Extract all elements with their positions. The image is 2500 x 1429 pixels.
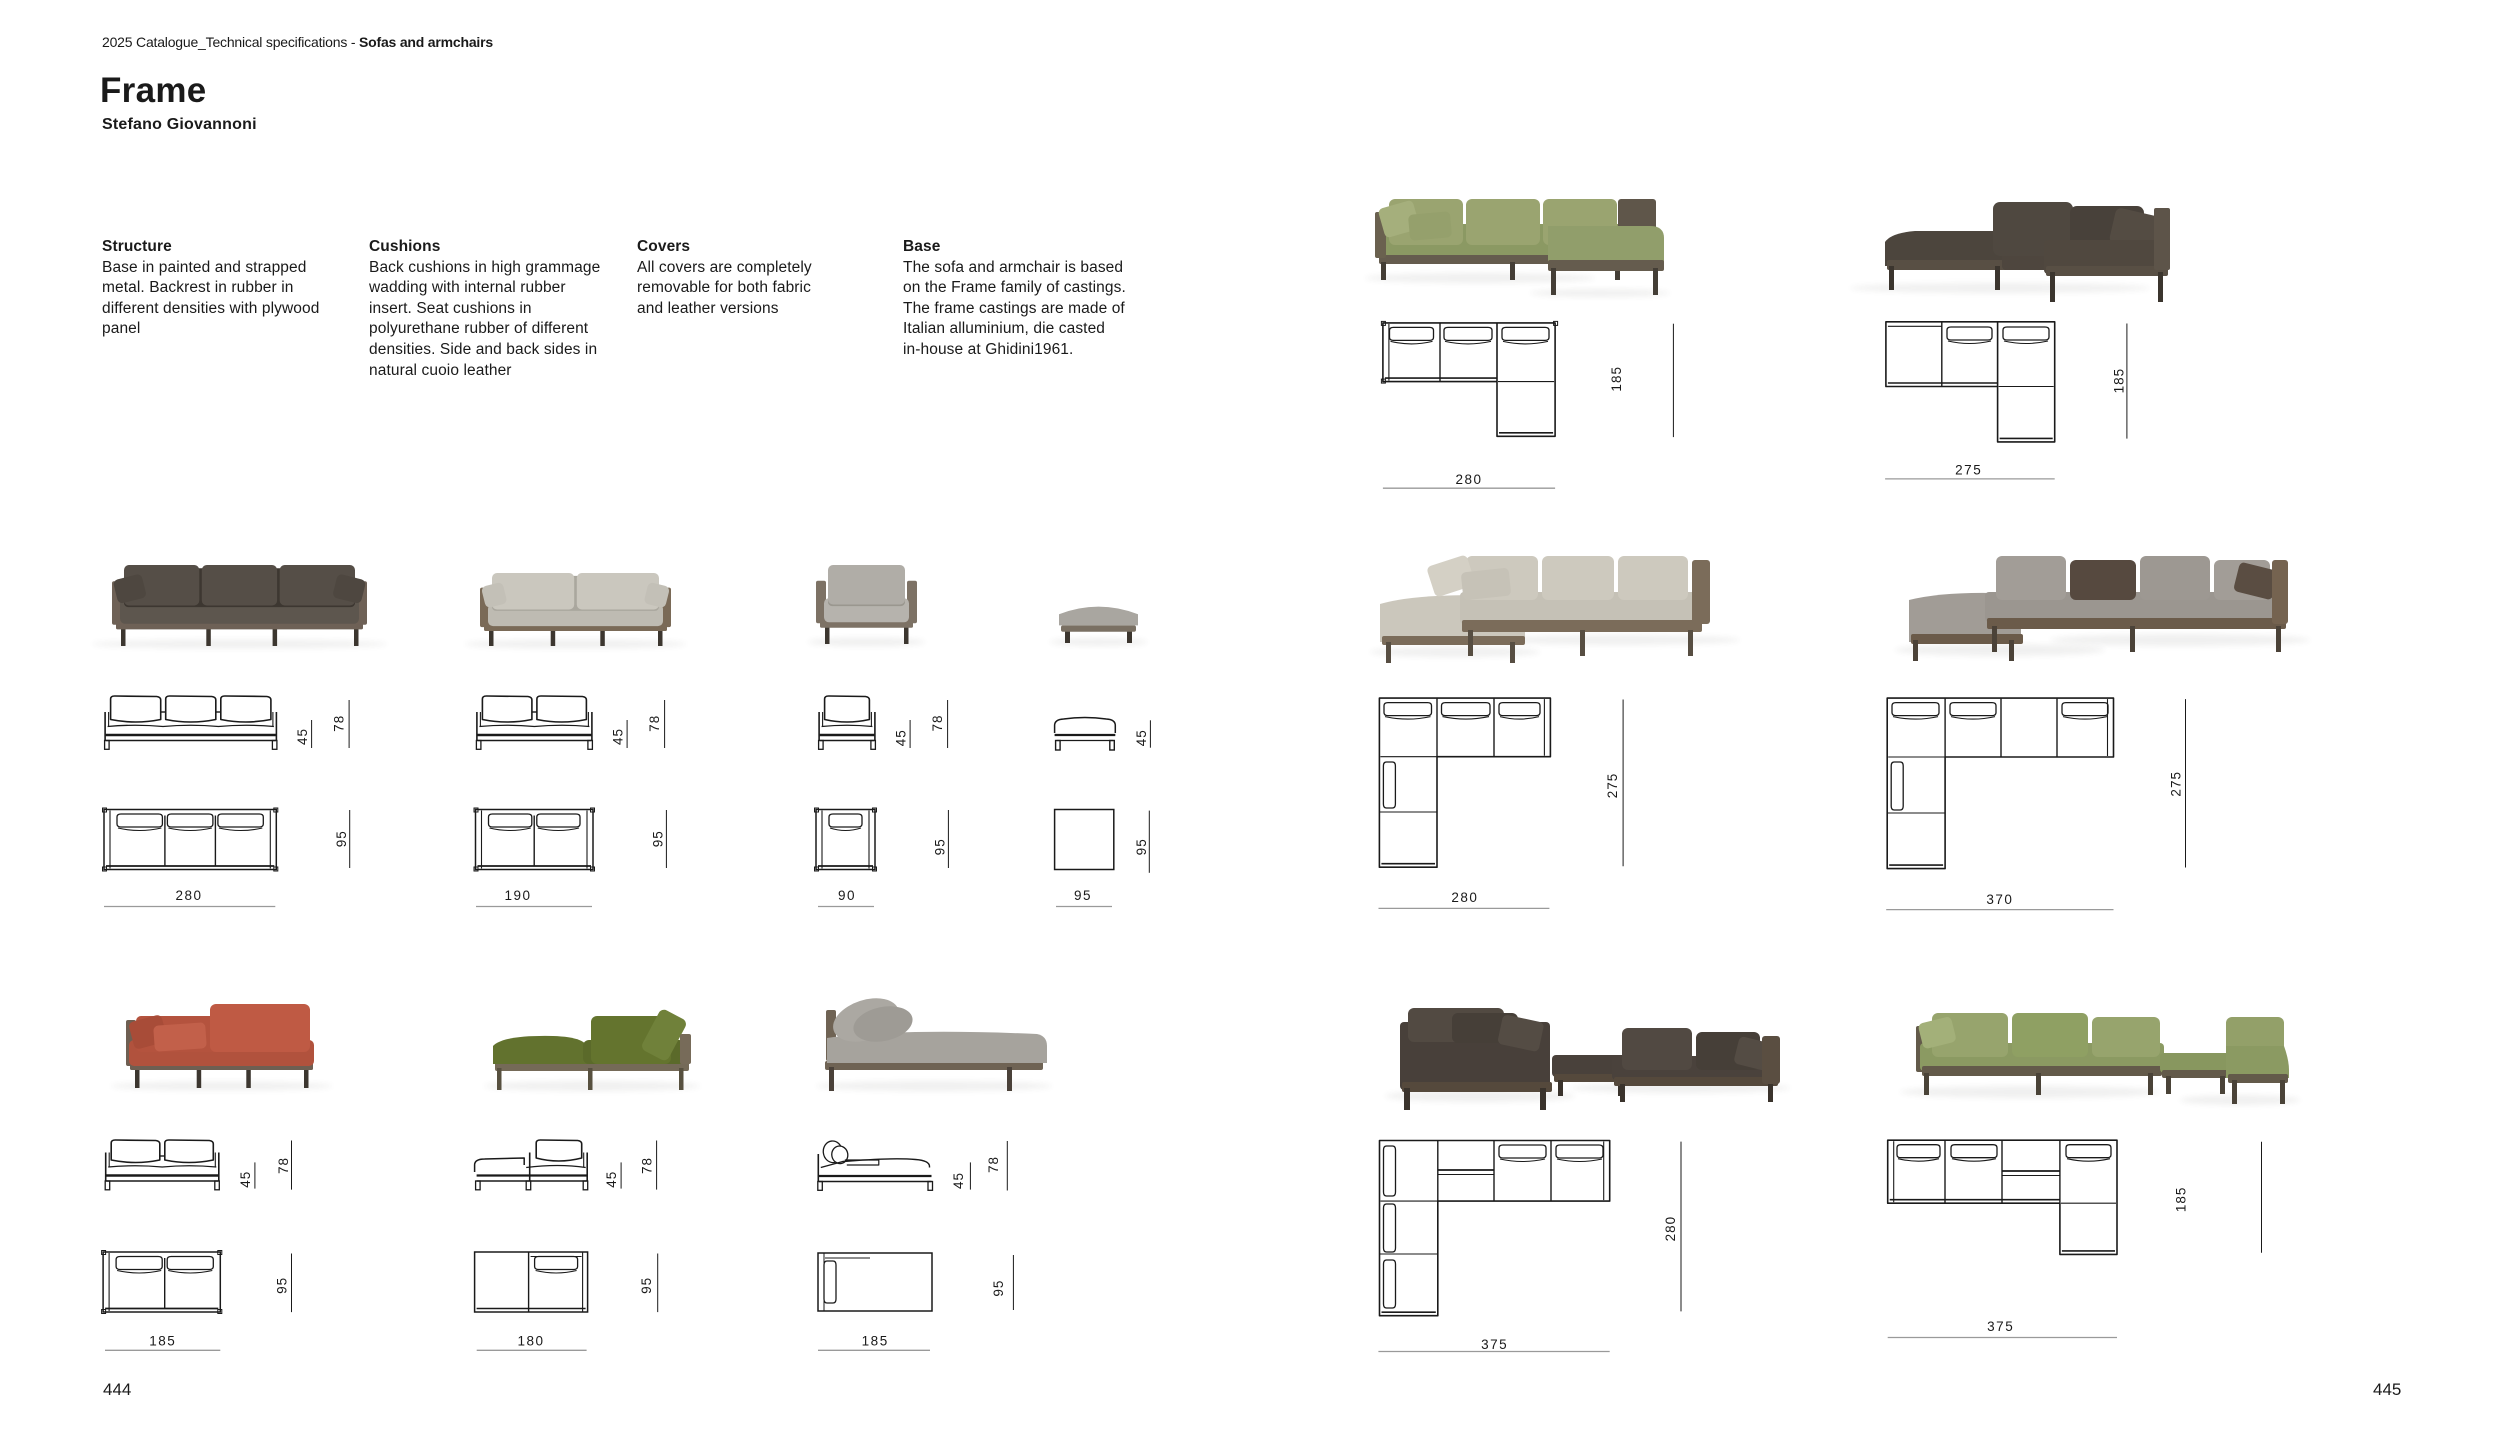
svg-text:185: 185	[149, 1334, 176, 1349]
svg-text:45: 45	[611, 728, 626, 745]
svg-text:78: 78	[276, 1157, 291, 1174]
svg-text:370: 370	[1986, 892, 2013, 907]
svg-text:95: 95	[639, 1277, 654, 1294]
svg-text:190: 190	[504, 888, 531, 903]
svg-text:375: 375	[1481, 1337, 1508, 1352]
svg-text:45: 45	[951, 1172, 966, 1189]
svg-text:180: 180	[517, 1334, 544, 1349]
svg-text:275: 275	[1605, 773, 1620, 799]
svg-text:90: 90	[838, 888, 856, 903]
svg-text:280: 280	[1663, 1216, 1678, 1242]
svg-text:45: 45	[604, 1171, 619, 1188]
svg-text:95: 95	[1074, 888, 1092, 903]
svg-text:95: 95	[651, 830, 666, 847]
svg-text:185: 185	[2112, 368, 2127, 394]
svg-text:280: 280	[175, 888, 202, 903]
svg-text:78: 78	[986, 1156, 1001, 1173]
svg-text:45: 45	[238, 1171, 253, 1188]
svg-text:78: 78	[930, 714, 945, 731]
svg-text:45: 45	[1134, 729, 1149, 746]
svg-text:95: 95	[1134, 838, 1149, 855]
svg-text:185: 185	[862, 1334, 889, 1349]
svg-text:275: 275	[1955, 463, 1982, 478]
svg-text:78: 78	[332, 715, 347, 732]
svg-text:280: 280	[1451, 890, 1478, 905]
svg-text:185: 185	[2174, 1187, 2189, 1213]
svg-text:275: 275	[2169, 771, 2184, 797]
svg-text:78: 78	[647, 715, 662, 732]
svg-text:95: 95	[933, 838, 948, 855]
svg-text:95: 95	[334, 830, 349, 847]
svg-text:185: 185	[1609, 366, 1624, 392]
svg-text:280: 280	[1455, 472, 1482, 487]
svg-text:45: 45	[295, 728, 310, 745]
svg-text:45: 45	[894, 729, 909, 746]
svg-text:95: 95	[275, 1277, 290, 1294]
svg-text:375: 375	[1987, 1319, 2014, 1334]
svg-text:95: 95	[991, 1280, 1006, 1297]
svg-text:78: 78	[640, 1157, 655, 1174]
